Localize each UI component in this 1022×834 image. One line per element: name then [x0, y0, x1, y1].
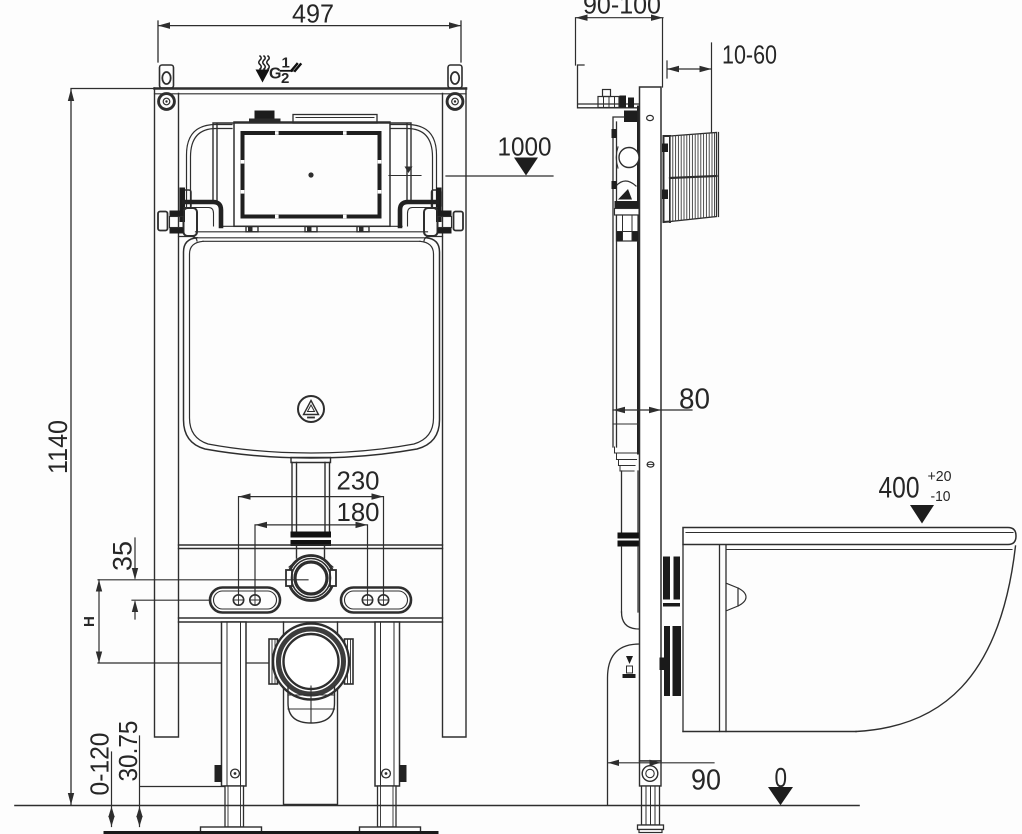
- svg-text:10-60: 10-60: [722, 40, 777, 70]
- svg-text:90: 90: [691, 765, 721, 797]
- svg-text:30.75: 30.75: [113, 721, 143, 782]
- svg-text:+20: +20: [928, 468, 952, 485]
- svg-text:G: G: [269, 66, 281, 83]
- svg-text:0-120: 0-120: [85, 733, 115, 796]
- svg-text:80: 80: [679, 384, 710, 416]
- svg-text:497: 497: [292, 0, 334, 29]
- svg-text:90-100: 90-100: [583, 0, 661, 20]
- svg-text:-10: -10: [931, 488, 951, 505]
- svg-text:35: 35: [108, 541, 138, 571]
- svg-text:H: H: [81, 616, 98, 627]
- svg-text:1000: 1000: [498, 132, 552, 162]
- svg-text:1: 1: [282, 55, 290, 72]
- svg-text:2: 2: [281, 70, 289, 87]
- svg-text:400: 400: [879, 472, 920, 505]
- svg-text:1140: 1140: [43, 420, 73, 474]
- svg-text:230: 230: [337, 466, 380, 496]
